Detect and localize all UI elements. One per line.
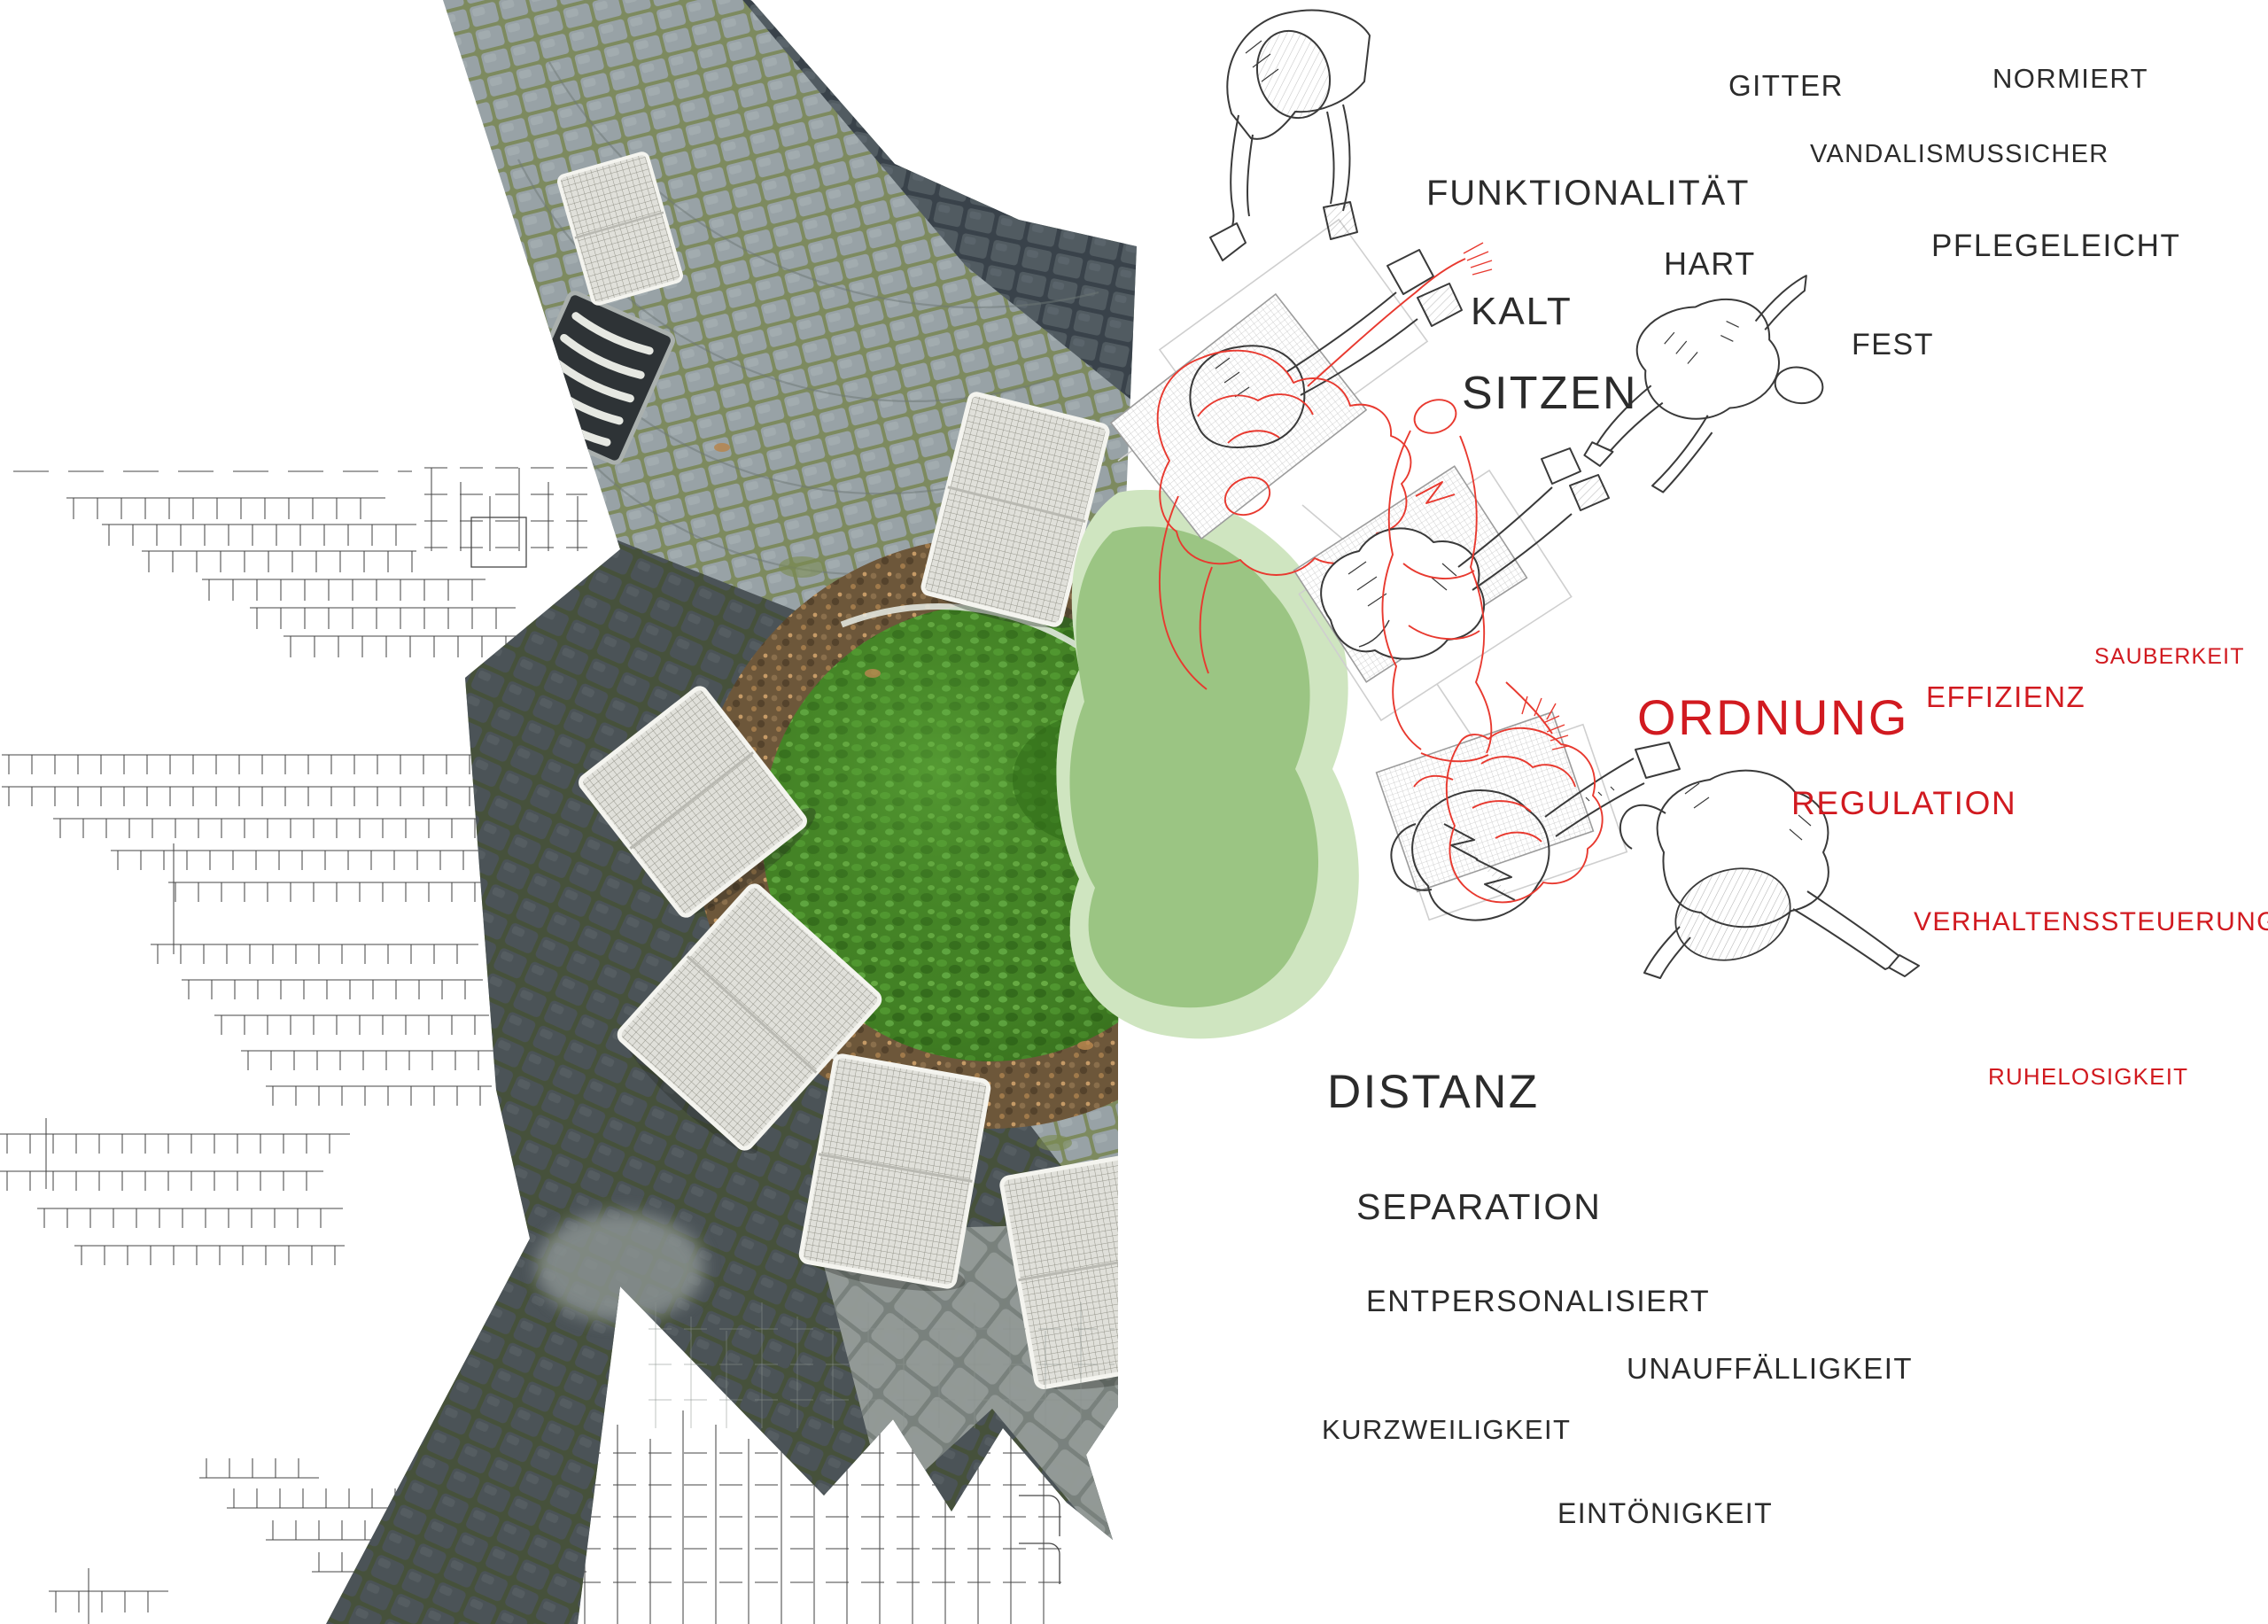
keyword-distanz: DISTANZ xyxy=(1327,1068,1540,1115)
keyword-vandalismussicher: VANDALISMUSSICHER xyxy=(1810,142,2109,167)
keyword-kalt: KALT xyxy=(1471,292,1573,331)
keyword-normiert: NORMIERT xyxy=(1992,65,2148,92)
keyword-hart: HART xyxy=(1664,248,1756,280)
concept-collage-board: GITTER NORMIERT FUNKTIONALITÄT VANDALISM… xyxy=(0,0,2268,1624)
keyword-fest: FEST xyxy=(1852,330,1934,360)
keyword-unauffaelligkeit: UNAUFFÄLLIGKEIT xyxy=(1627,1354,1913,1383)
keyword-kurzweiligkeit: KURZWEILIGKEIT xyxy=(1322,1416,1571,1443)
keyword-pflegeleicht: PFLEGELEICHT xyxy=(1931,230,2180,261)
keyword-effizienz: EFFIZIENZ xyxy=(1926,682,2085,711)
keyword-ordnung: ORDNUNG xyxy=(1637,693,1909,742)
keyword-verhaltenssteuerung: VERHALTENSSTEUERUNG xyxy=(1914,909,2268,936)
keyword-ruhelosigkeit: RUHELOSIGKEIT xyxy=(1988,1065,2188,1088)
keyword-entpersonalisiert: ENTPERSONALISIERT xyxy=(1366,1286,1710,1317)
keyword-sitzen: SITZEN xyxy=(1462,370,1638,416)
keyword-funktionalitaet: FUNKTIONALITÄT xyxy=(1426,175,1750,211)
keyword-regulation: REGULATION xyxy=(1791,787,2016,820)
keyword-eintoenigkeit: EINTÖNIGKEIT xyxy=(1557,1499,1773,1527)
keyword-separation: SEPARATION xyxy=(1356,1189,1602,1225)
keyword-gitter: GITTER xyxy=(1728,71,1844,100)
figure-on-bench2-black xyxy=(1321,448,1609,659)
keyword-sauberkeit: SAUBERKEIT xyxy=(2094,646,2245,668)
figure-walking-person xyxy=(1210,11,1370,260)
